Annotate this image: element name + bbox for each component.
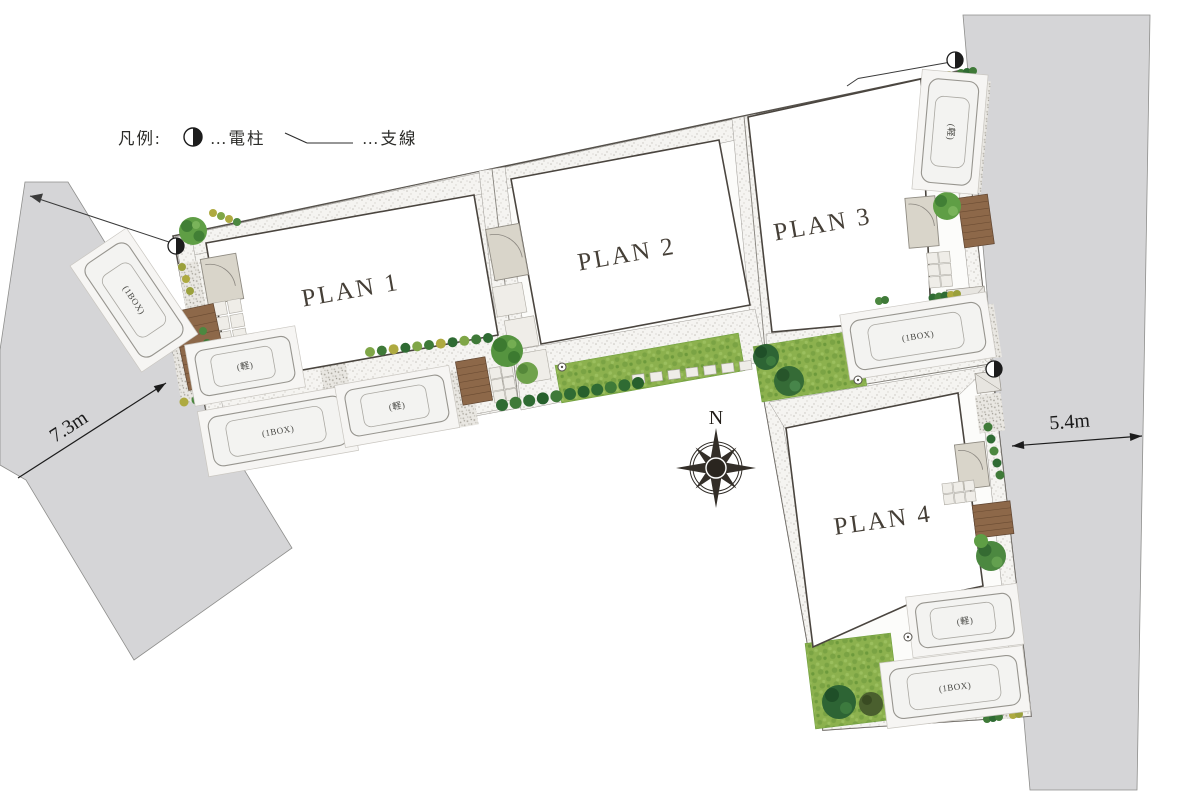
svg-text:5.4m: 5.4m (1049, 410, 1091, 435)
hedge-north-plan1 (209, 209, 241, 226)
utility-pole-icon (168, 238, 184, 254)
north-label: N (709, 407, 723, 429)
legend-title: 凡例: (118, 129, 162, 148)
tree-icon (516, 362, 538, 384)
tree-icon (179, 217, 207, 245)
utility-pole-legend-icon (184, 128, 202, 146)
utility-pole-icon (986, 361, 1002, 377)
svg-text:(軽): (軽) (945, 123, 956, 140)
plan3-house (748, 79, 931, 332)
tree-icon (822, 685, 856, 719)
tree-icon (491, 335, 523, 367)
car-plan4-kei: (軽) (906, 583, 1025, 657)
site-plan-page: PLAN 1 PLAN 2 PLAN 3 PLAN 4 (0, 0, 1200, 800)
compass-rose: N (676, 407, 756, 508)
utility-pole-icon (947, 52, 963, 68)
site-plan-drawing: PLAN 1 PLAN 2 PLAN 3 PLAN 4 (0, 0, 1200, 800)
svg-text:(軽): (軽) (956, 615, 974, 627)
tree-icon (753, 344, 779, 370)
tree-icon (933, 192, 961, 220)
tree-icon (859, 692, 883, 716)
guy-wire-legend-icon (285, 133, 353, 143)
legend-wire-label: …支線 (362, 129, 418, 148)
tree-icon (774, 366, 804, 396)
legend-pole-label: …電柱 (210, 129, 266, 148)
legend: 凡例: …電柱 …支線 (118, 128, 418, 148)
car-plan3-kei: (軽) (912, 69, 988, 194)
